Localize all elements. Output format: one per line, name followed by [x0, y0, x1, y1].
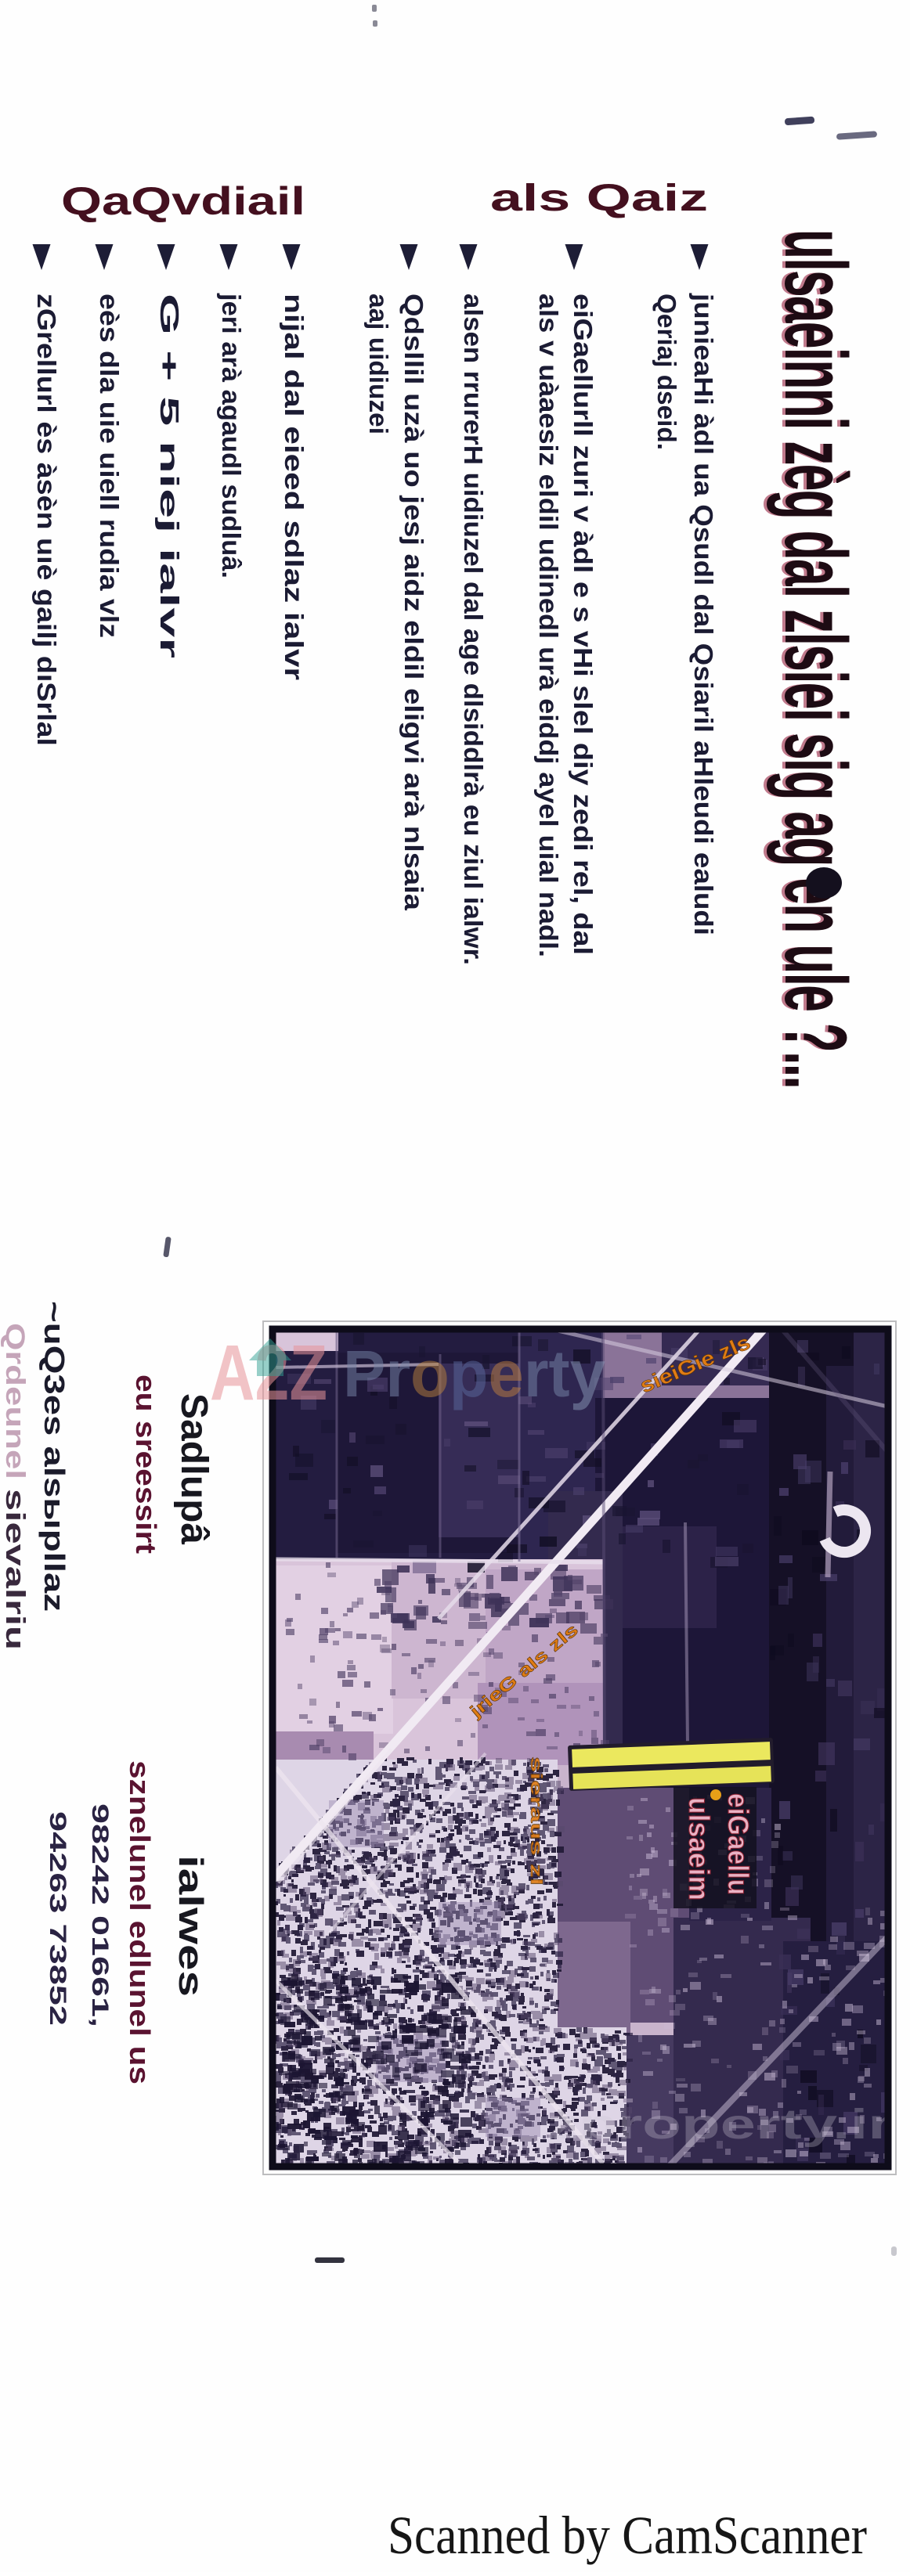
- svg-text:als v uàaesiz eldil udinedl ur: als v uàaesiz eldil udinedl urà eiddj ay…: [534, 294, 563, 957]
- svg-text:sieraus zl: sieraus zl: [527, 1756, 544, 1886]
- svg-text:Qrdeunel: Qrdeunel: [0, 1323, 30, 1479]
- svg-text:aaj uidiuzei: aaj uidiuzei: [364, 294, 393, 434]
- svg-text:sznelunel edlunel us: sznelunel edlunel us: [124, 1760, 156, 2084]
- svg-text:eès dla uie uiell rudia vlz: eès dla uie uiell rudia vlz: [95, 294, 124, 638]
- svg-text:sievalriu: sievalriu: [0, 1489, 30, 1650]
- svg-text:zGrellurl ès àsèn uıè gailj dı: zGrellurl ès àsèn uıè gailj dıSrlal: [32, 294, 61, 746]
- svg-text:~uQ3es alsырllaz: ~uQ3es alsырllaz: [38, 1301, 70, 1612]
- svg-text:jeri arà agaudl sudluâ.: jeri arà agaudl sudluâ.: [217, 293, 246, 578]
- svg-text:als Qaiz: als Qaiz: [490, 178, 708, 219]
- svg-text:eu sreessirt: eu sreessirt: [130, 1374, 162, 1554]
- svg-text:Property: Property: [343, 1337, 605, 1410]
- svg-text:Scanned by CamScanner: Scanned by CamScanner: [388, 2506, 867, 2565]
- svg-text:98242 01661,: 98242 01661,: [87, 1803, 113, 2027]
- svg-text:QaQvdiail: QaQvdiail: [61, 179, 305, 223]
- svg-text:Sadlupâ: Sadlupâ: [173, 1393, 215, 1544]
- svg-text:Qdsllil uzà uo jesj aidz eldil: Qdsllil uzà uo jesj aidz eldil eligvi ar…: [399, 294, 428, 911]
- svg-text:ulsaeinni zèg dal zlsiei sig a: ulsaeinni zèg dal zlsiei sig ag en ule ?…: [767, 229, 865, 1088]
- svg-text:junieaHi àdl ua Qsudl dal Qsia: junieaHi àdl ua Qsudl dal Qsiaril aHleud…: [689, 293, 718, 935]
- svg-text:ulsaeim: ulsaeim: [683, 1797, 715, 1900]
- svg-text:Qeriaj dseid.: Qeriaj dseid.: [652, 294, 681, 450]
- svg-text:nijal dal eieed sdlaz ialvr: nijal dal eieed sdlaz ialvr: [280, 294, 309, 680]
- svg-text:ialwes: ialwes: [172, 1855, 210, 1997]
- svg-text:eiGaellu: eiGaellu: [722, 1793, 754, 1895]
- svg-text:G + 5 niej ialvr: G + 5 niej ialvr: [155, 294, 184, 658]
- svg-text:alsen rrurerH uidiuzel dal age: alsen rrurerH uidiuzel dal age dlsiddlrà…: [459, 294, 488, 965]
- svg-text:zproperty.in: zproperty.in: [547, 2101, 907, 2148]
- svg-text:eiGaellurll zuri v àdl e s vHi: eiGaellurll zuri v àdl e s vHi slel diy …: [569, 294, 598, 955]
- svg-text:94263 73852: 94263 73852: [45, 1811, 70, 2026]
